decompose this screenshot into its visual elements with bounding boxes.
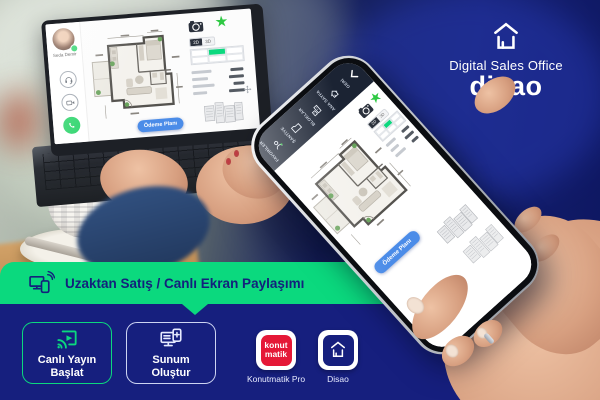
- background-blur-red-sign: [2, 92, 36, 150]
- disao-house-icon: [488, 20, 524, 54]
- screen-share-devices-icon: [28, 270, 55, 296]
- disao-app-icon[interactable]: [318, 330, 358, 370]
- present-button-line1: Sunum: [152, 354, 189, 366]
- site-blocks-thumbnail[interactable]: [198, 99, 250, 130]
- konutmatik-app-icon[interactable]: konutmatik: [256, 330, 296, 370]
- live-button-line2: Başlat: [50, 367, 83, 379]
- pan-compass-icon[interactable]: [243, 85, 253, 95]
- konutmatik-logo: konutmatik: [261, 335, 292, 366]
- toggle-2d[interactable]: 2D: [190, 38, 203, 46]
- home-icon: [326, 85, 342, 101]
- konutmatik-app-label: Konutmatik Pro: [224, 374, 328, 384]
- unit-info-row: [191, 67, 243, 74]
- unit-info-row: [192, 74, 244, 81]
- cast-play-icon: [54, 326, 80, 352]
- camera-icon[interactable]: [187, 19, 204, 33]
- marketing-composite: Seda Demir ★ 2D 3D Ödeme Planı: [0, 0, 600, 400]
- support-headset-icon[interactable]: [59, 70, 77, 88]
- banner-notch: [182, 304, 208, 315]
- unit-info-row: [193, 81, 245, 88]
- view-toggle: 2D 3D: [189, 36, 216, 47]
- favorite-star-icon[interactable]: ★: [215, 13, 228, 30]
- toggle-3d[interactable]: 3D: [202, 37, 215, 45]
- fingernail-red: [234, 150, 239, 157]
- house-icon: [328, 340, 348, 360]
- unit-info-row: [193, 88, 245, 95]
- create-presentation-icon: [158, 326, 184, 352]
- camera-icon[interactable]: [356, 101, 375, 120]
- disao-logo-tile: [323, 335, 354, 366]
- banner-text: Uzaktan Satış / Canlı Ekran Paylaşımı: [65, 276, 304, 291]
- folder-icon: [288, 119, 304, 135]
- video-call-icon[interactable]: [61, 93, 79, 111]
- nav-back[interactable]: GERİ: [334, 63, 365, 94]
- agent-name: Seda Demir: [48, 51, 82, 59]
- whatsapp-icon[interactable]: [63, 116, 81, 134]
- unit-selector-table[interactable]: [190, 45, 245, 65]
- disao-app-label: Disao: [318, 374, 358, 384]
- payment-plan-button[interactable]: Ödeme Planı: [137, 117, 184, 133]
- present-button-line2: Oluştur: [151, 367, 190, 379]
- live-button-line1: Canlı Yayın: [38, 354, 97, 366]
- fingernail-red: [226, 158, 231, 165]
- floor-plan[interactable]: [86, 27, 188, 129]
- laptop-app-window: Seda Demir ★ 2D 3D Ödeme Planı: [45, 8, 260, 144]
- create-presentation-button[interactable]: Sunum Oluştur: [126, 322, 216, 384]
- start-live-broadcast-button[interactable]: Canlı Yayın Başlat: [22, 322, 112, 384]
- laptop-screen: Seda Demir ★ 2D 3D Ödeme Planı: [41, 4, 273, 157]
- laptop-app-sidebar: Seda Demir: [45, 22, 89, 144]
